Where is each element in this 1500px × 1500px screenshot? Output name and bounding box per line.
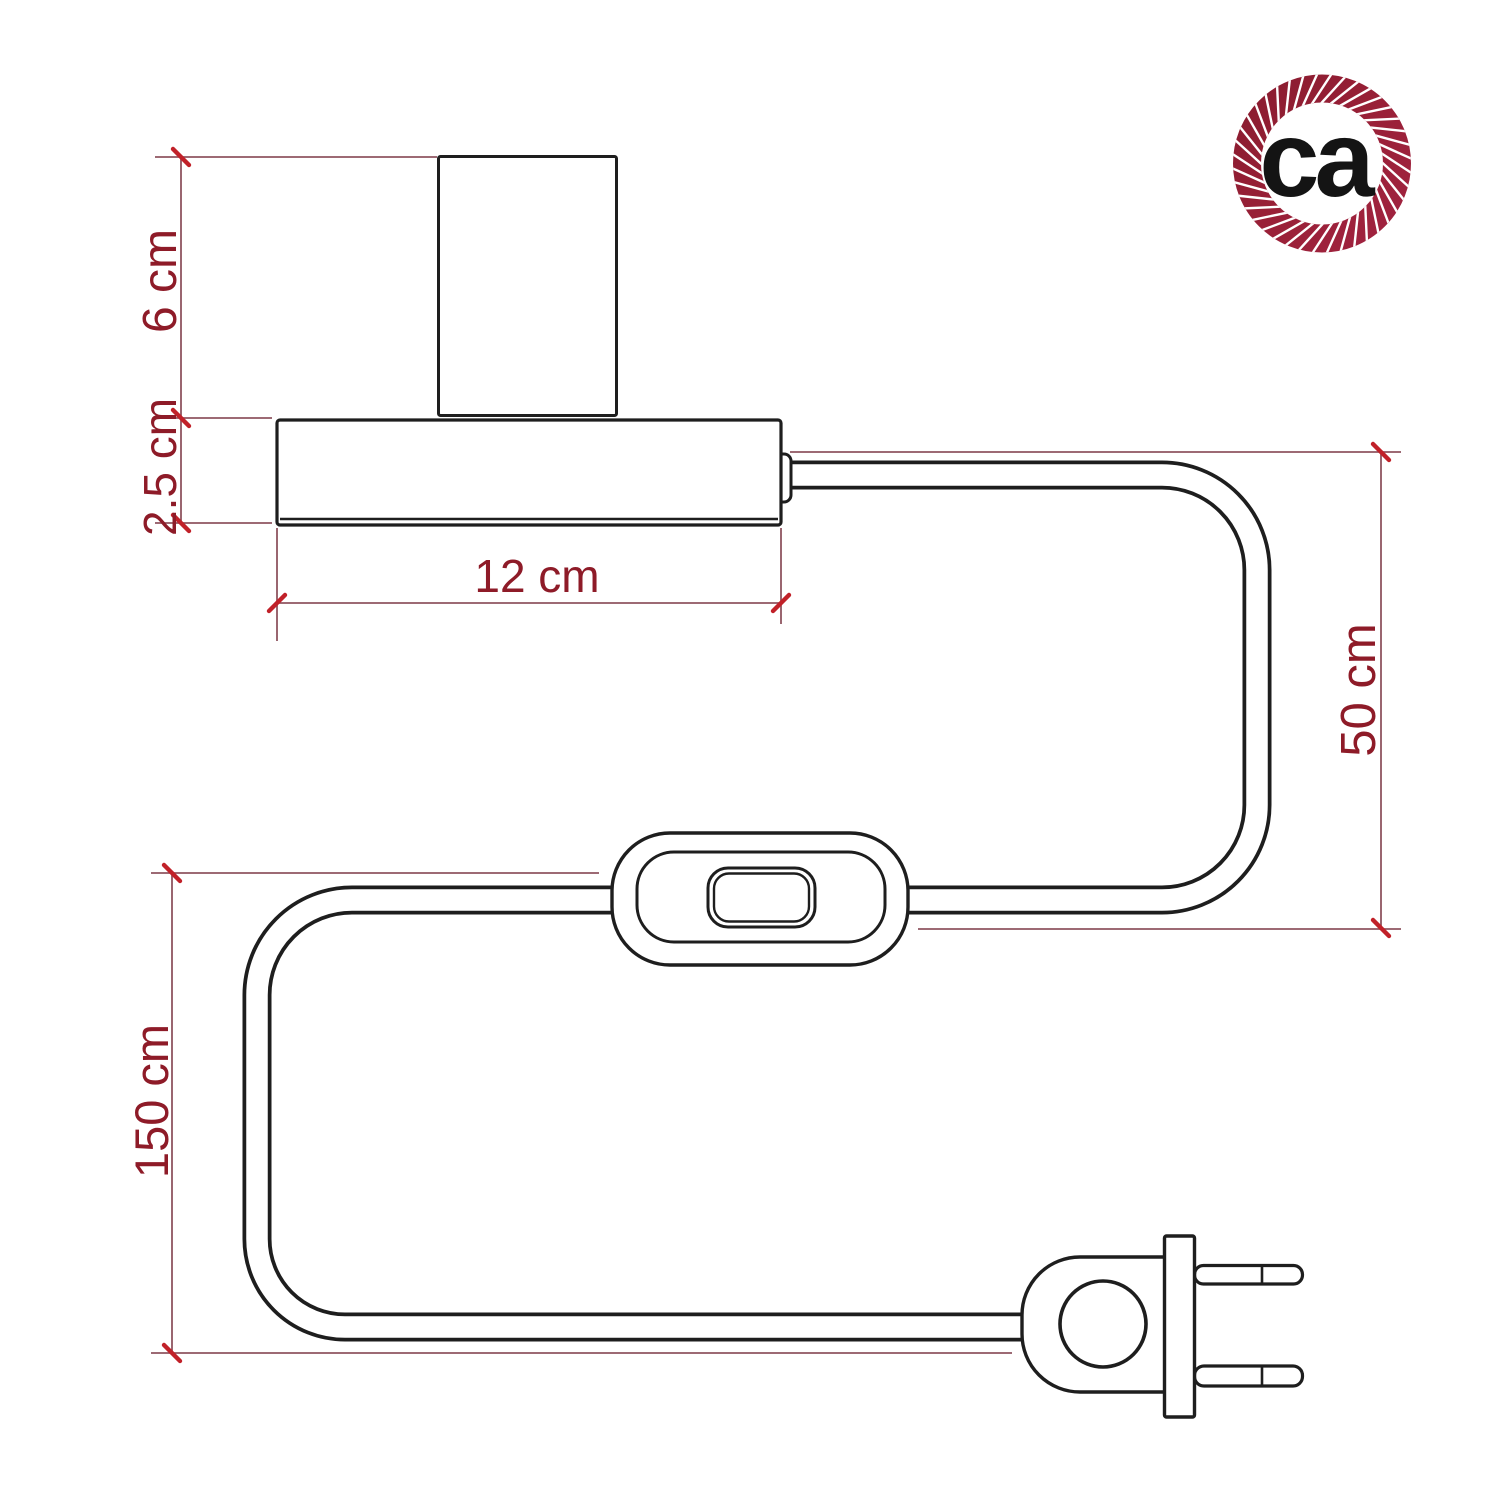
svg-text:ca: ca (1259, 98, 1375, 219)
svg-text:50 cm: 50 cm (1332, 623, 1386, 756)
svg-text:6 cm: 6 cm (134, 229, 187, 333)
svg-text:12 cm: 12 cm (474, 550, 599, 602)
svg-text:2.5 cm: 2.5 cm (134, 398, 186, 536)
svg-text:150 cm: 150 cm (125, 1024, 178, 1178)
